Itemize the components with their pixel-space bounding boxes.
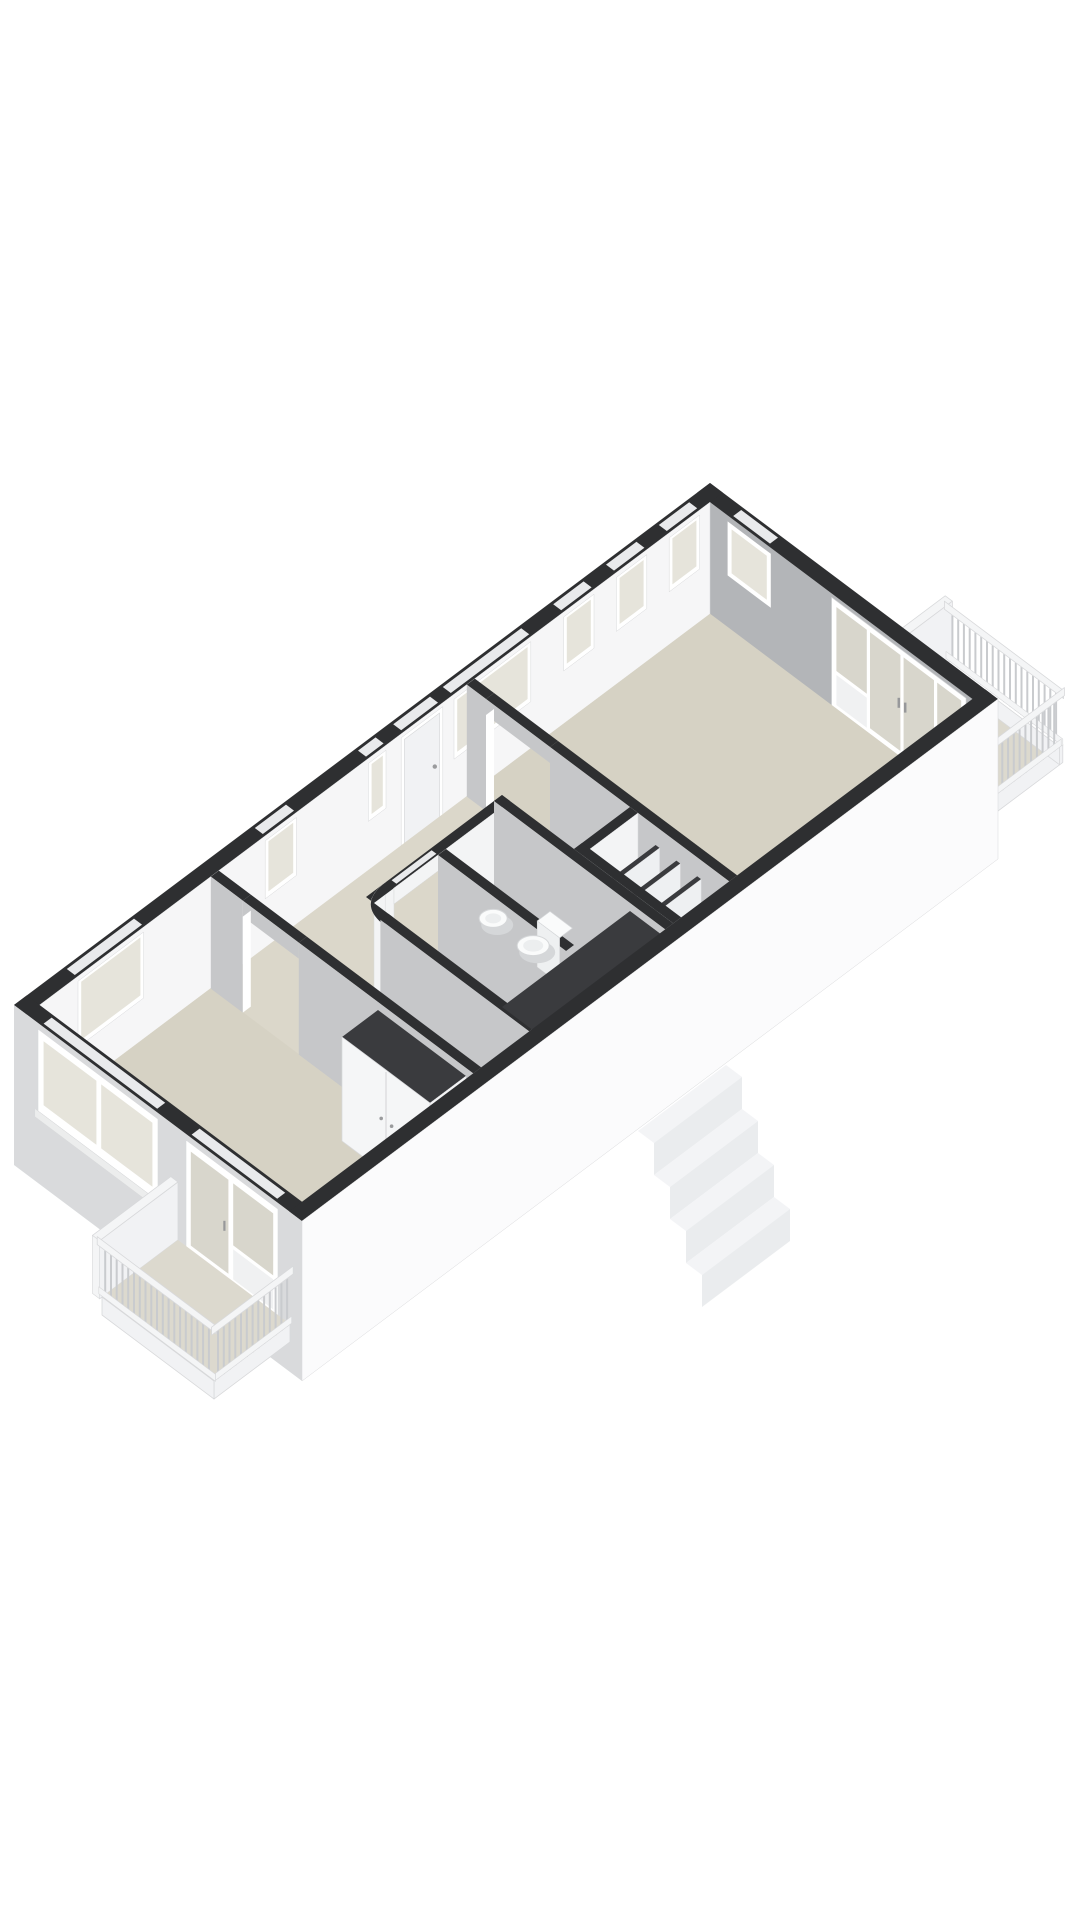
- living-door-jamb: [486, 709, 494, 811]
- washbasin-bowl: [485, 913, 501, 923]
- bedroom-door-jamb: [243, 911, 251, 1013]
- wardrobe-handle: [379, 1117, 383, 1121]
- entry-door-handle: [433, 764, 437, 768]
- bedroom-wall-face: [211, 877, 243, 1013]
- living-wall-face: [467, 685, 486, 811]
- toilet-seat: [523, 940, 543, 952]
- floorplan-3d-render: [0, 0, 1080, 1920]
- wardrobe-handle: [390, 1124, 394, 1128]
- nw-window-glass: [372, 756, 383, 814]
- floorplan-canvas: [0, 0, 1080, 1920]
